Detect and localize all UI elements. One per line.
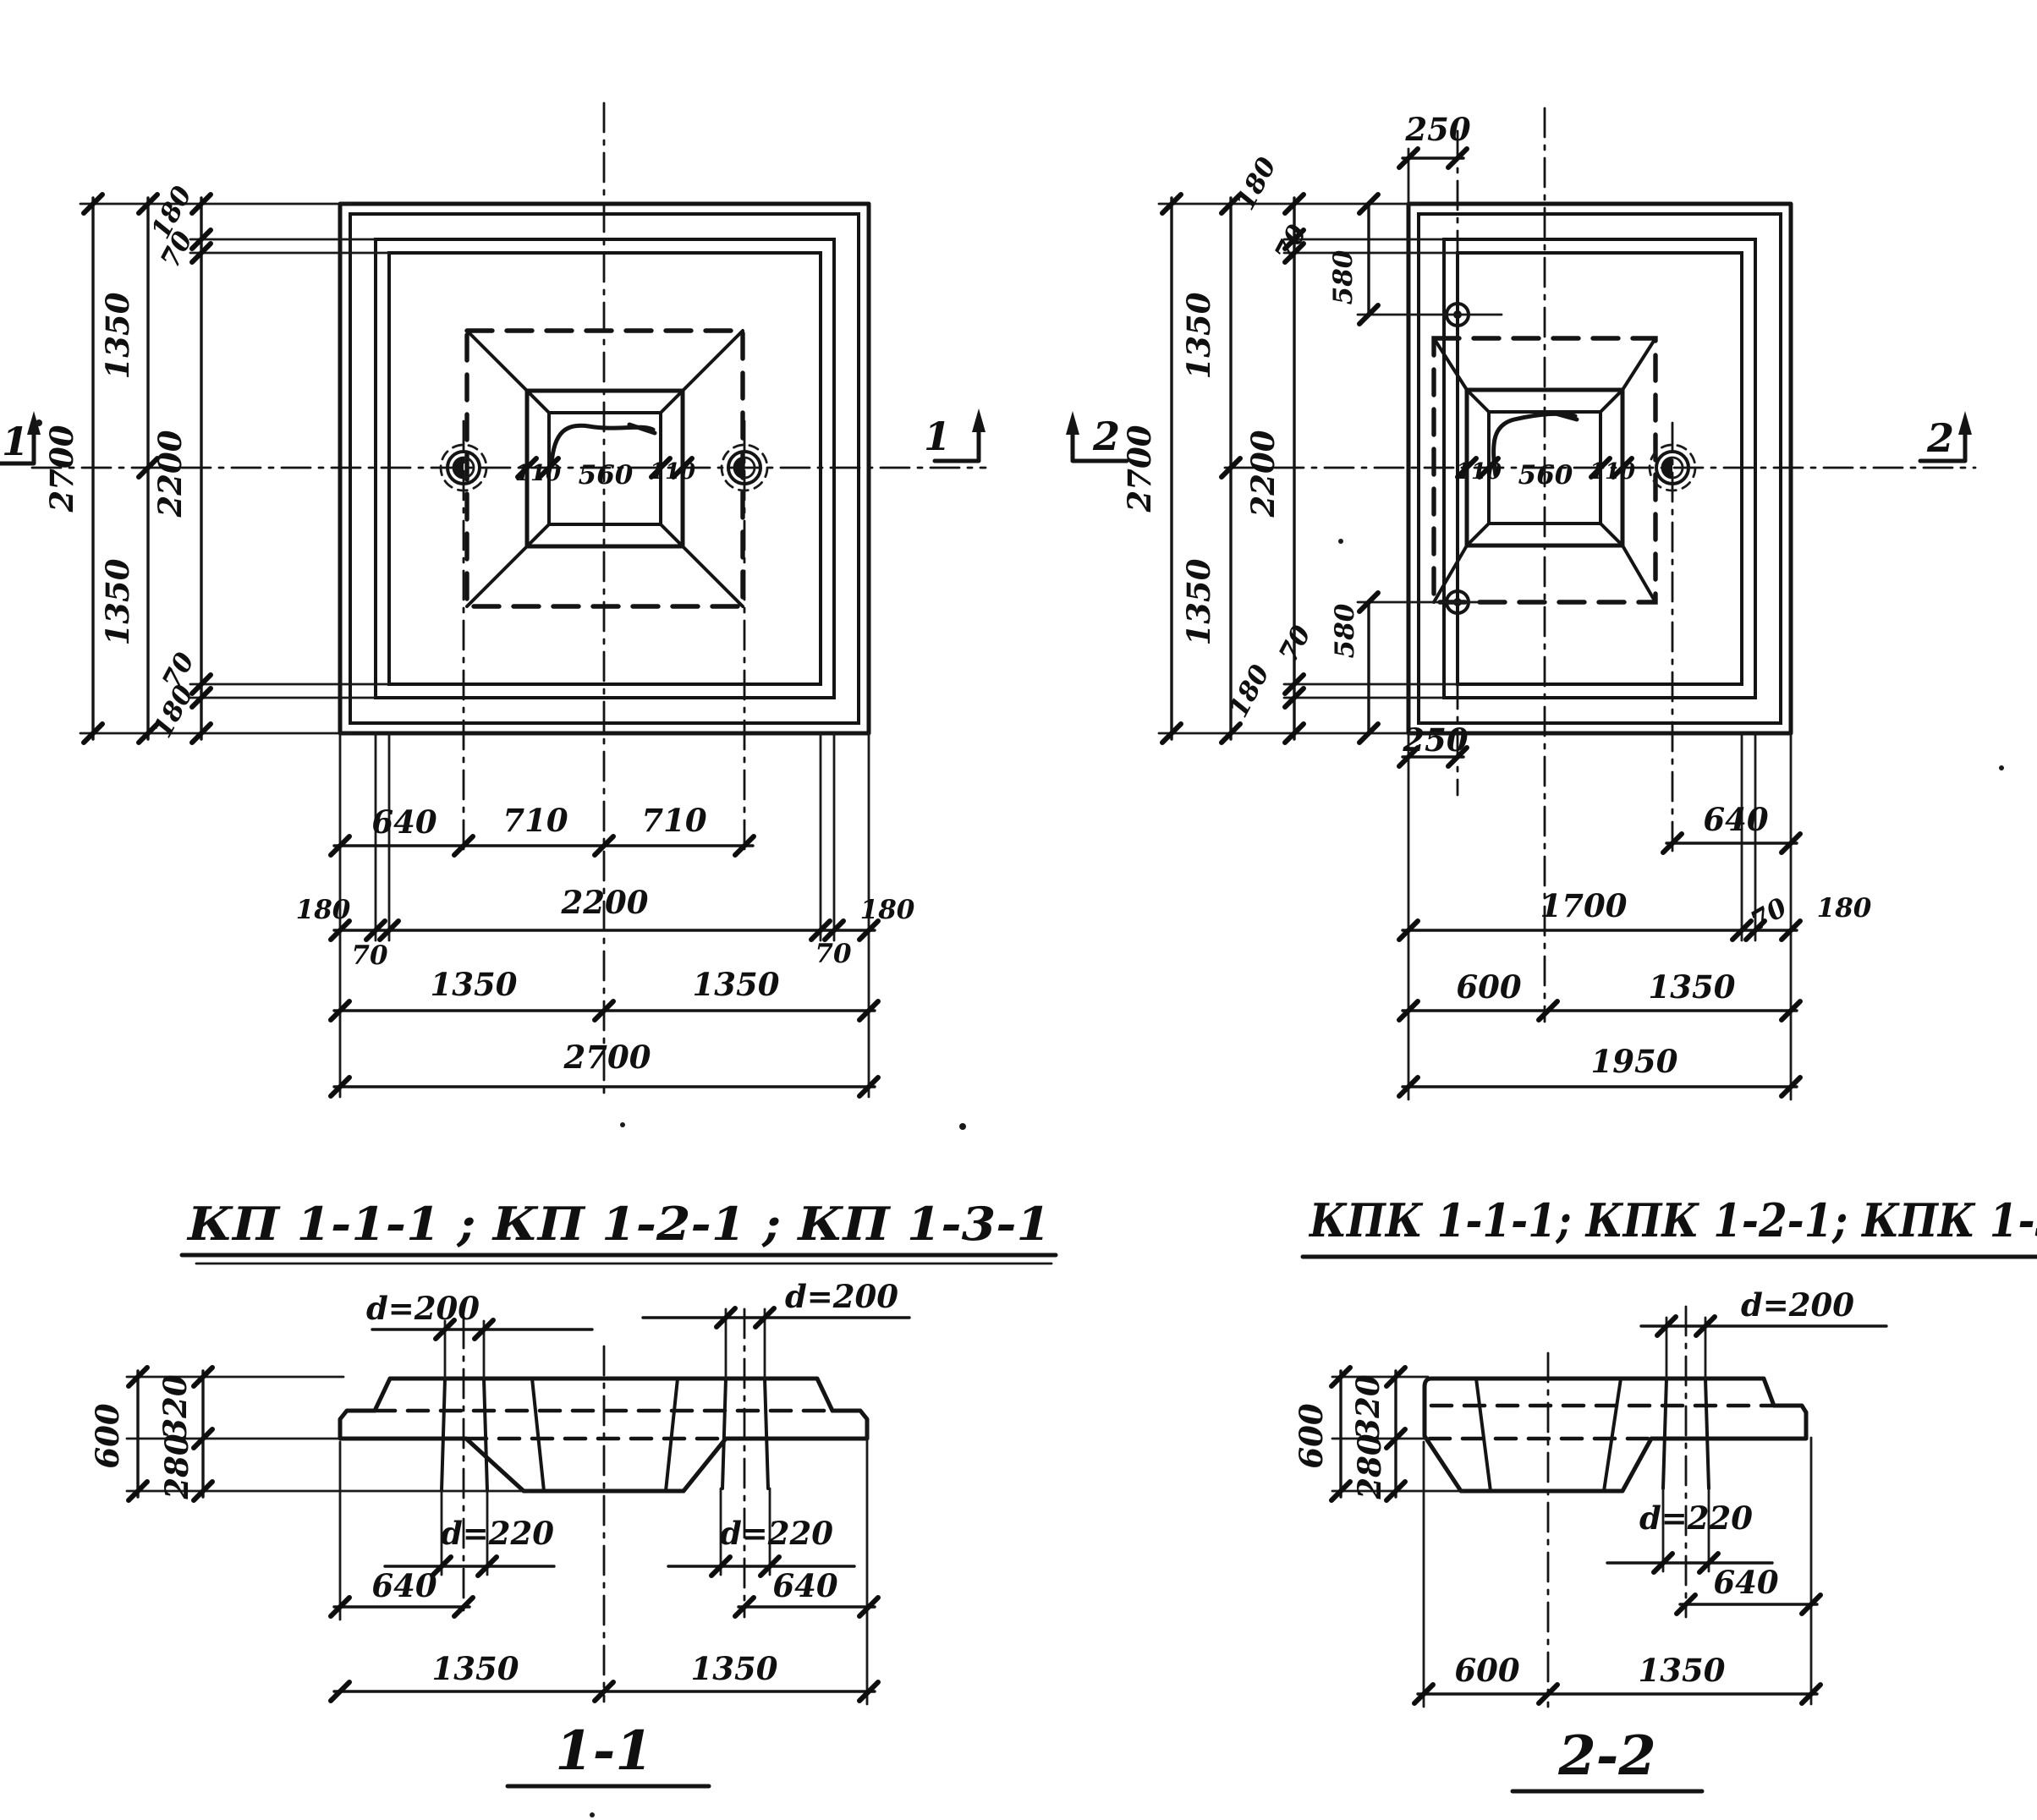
plan-view-kpk: 2 2 250 250 2700 1350 1350 2200 180 70 5… <box>1066 108 1975 1099</box>
technical-drawing: 1 1 2700 1350 1350 2200 180 70 70 180 11… <box>0 0 2037 1820</box>
section-1-1: d=200 d=200 d=220 d=220 600 320 280 640 … <box>89 1278 909 1786</box>
drawing-sheet: 1 1 2700 1350 1350 2200 180 70 70 180 11… <box>0 0 2037 1820</box>
dim-label: 1350 <box>431 966 518 1003</box>
dim-label: 710 <box>641 802 706 839</box>
dim-label: 600 <box>1293 1403 1330 1468</box>
dim-label: 640 <box>772 1567 837 1604</box>
dim-label: 70 <box>1269 219 1313 266</box>
dim-label: 1350 <box>99 558 136 645</box>
dim-label: 180 <box>296 895 351 925</box>
bolt-hole-right <box>1650 445 1695 491</box>
dim-label: 250 <box>1402 721 1468 759</box>
dim-label: 70 <box>815 939 852 969</box>
title-kp: КП 1-1-1 ; КП 1-2-1 ; КП 1-3-1 <box>186 1197 1051 1251</box>
dim-label: 180 <box>1230 152 1282 215</box>
dim-label: 580 <box>1328 249 1359 304</box>
dim-label: 1350 <box>693 966 780 1003</box>
mark-titles: КП 1-1-1 ; КП 1-2-1 ; КП 1-3-1 КПК 1-1-1… <box>182 1193 2037 1264</box>
dim-label: 640 <box>371 1567 436 1604</box>
dim-label: 180 <box>860 895 915 925</box>
dim-label: 1350 <box>1639 1652 1726 1689</box>
dimension-ticks <box>1162 149 1800 1096</box>
plan-view-kp: 1 1 2700 1350 1350 2200 180 70 70 180 11… <box>0 103 986 1097</box>
dim-label: 1350 <box>1180 292 1217 379</box>
dim-label: 320 <box>1349 1374 1386 1439</box>
dim-label: 110 <box>1590 459 1635 485</box>
section-mark-label: 1 <box>2 419 29 464</box>
dim-label: d=220 <box>1639 1499 1753 1537</box>
dim-label: 2200 <box>561 884 649 921</box>
section-2-2: d=200 d=220 600 320 280 640 600 1350 2-2 <box>1293 1286 1886 1791</box>
dim-label: 280 <box>158 1434 195 1499</box>
scan-specks <box>36 419 2004 1817</box>
extension-lines <box>1159 149 1791 1099</box>
dim-label: 2200 <box>151 430 189 518</box>
dim-label: 640 <box>1703 801 1768 838</box>
dim-label: d=200 <box>366 1290 480 1327</box>
dim-label: d=220 <box>441 1515 554 1552</box>
axes <box>464 1309 744 1702</box>
extension-lines <box>127 1309 867 1704</box>
section-mark-1-left: 1 <box>0 411 41 464</box>
dim-label: 1350 <box>1180 558 1217 645</box>
dim-label: 1350 <box>691 1650 778 1687</box>
dim-label: 2200 <box>1244 430 1282 518</box>
dim-label: 2700 <box>1121 425 1158 513</box>
dim-label: 710 <box>502 802 568 839</box>
dim-label: 70 <box>1273 620 1317 666</box>
dim-label: d=220 <box>720 1515 833 1552</box>
dim-label: 1700 <box>1540 887 1628 924</box>
dim-label: 600 <box>1454 1652 1519 1689</box>
dim-label: 250 <box>1404 111 1470 148</box>
dim-label: 580 <box>1330 603 1360 658</box>
title-kpk: КПК 1-1-1; КПК 1-2-1; КПК 1-3-1 <box>1308 1193 2037 1247</box>
dim-label: 1350 <box>1649 968 1736 1006</box>
dim-label: 640 <box>1713 1564 1778 1601</box>
dim-label: 640 <box>371 803 436 841</box>
dim-label: 320 <box>156 1374 194 1439</box>
dim-label: 1350 <box>99 292 136 379</box>
dim-label: 110 <box>515 461 561 486</box>
dim-label: 600 <box>89 1403 126 1468</box>
dim-label: 70 <box>351 940 388 971</box>
section-mark-label: 1 <box>924 414 951 459</box>
dim-label: 1950 <box>1591 1043 1678 1080</box>
section-title: 1-1 <box>555 1719 653 1783</box>
dim-label: d=200 <box>785 1278 898 1315</box>
bolt-hole-left <box>441 445 486 491</box>
section-mark-2-left: 2 <box>1066 411 1127 461</box>
dimension-lines <box>1172 158 1797 1087</box>
dim-label: 1350 <box>432 1650 519 1687</box>
section-mark-1-right: 1 <box>924 408 986 461</box>
dim-label: 600 <box>1456 968 1521 1006</box>
dim-label: 280 <box>1351 1434 1388 1499</box>
bolt-hole-right <box>722 445 767 491</box>
dim-label: 560 <box>579 460 634 491</box>
section-title: 2-2 <box>1557 1724 1656 1788</box>
section-mark-2-right: 2 <box>1920 411 1972 461</box>
dim-label: 560 <box>1518 460 1573 491</box>
dim-label: d=200 <box>1741 1286 1854 1324</box>
section-mark-label: 2 <box>1926 415 1954 461</box>
dimension-lines <box>138 1318 909 1691</box>
dim-label: 180 <box>1817 893 1872 924</box>
dim-label: 110 <box>1456 459 1502 485</box>
dim-label: 110 <box>650 459 695 485</box>
dim-label: 2700 <box>563 1039 651 1076</box>
section-mark-label: 2 <box>1092 414 1120 459</box>
dim-label: 2700 <box>43 425 80 513</box>
